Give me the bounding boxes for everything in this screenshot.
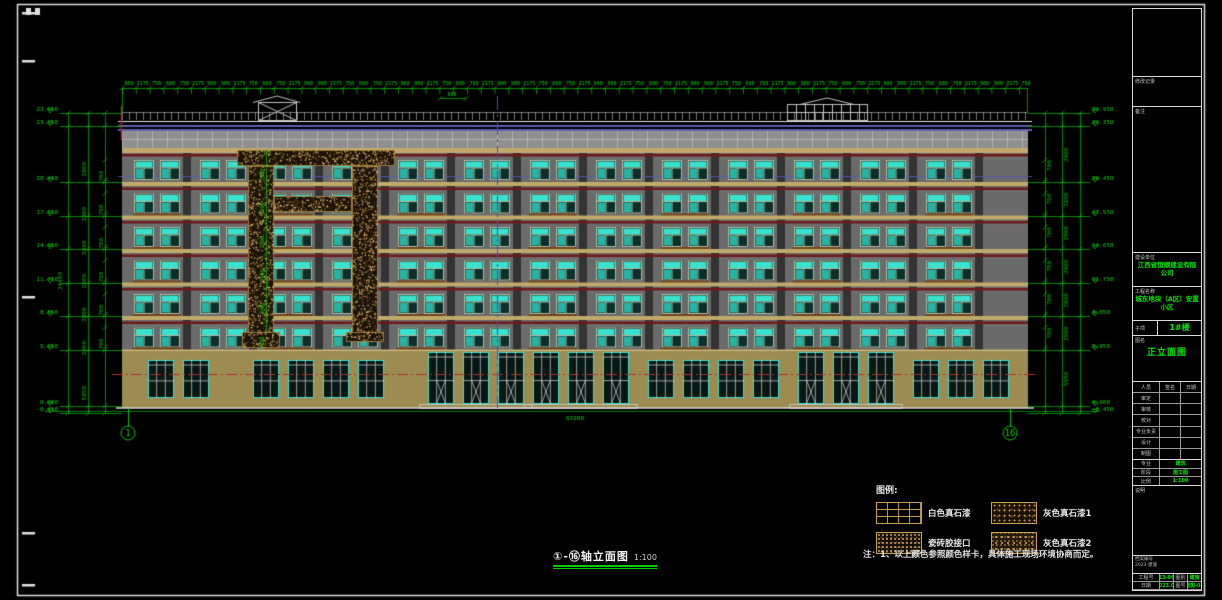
tb-stage-value: 施工图	[1160, 469, 1201, 477]
tb-subitem-box: 子项 1#楼	[1133, 321, 1201, 336]
tb-company-name: 江西省恒顺建设有限公司	[1133, 262, 1201, 277]
tb-bottom-row: 工程号23-06图别建施	[1133, 574, 1201, 582]
tb-bottom-label: 图号	[1174, 582, 1188, 589]
tb-sign-cell	[1160, 438, 1181, 448]
drawing-title-scale: 1:100	[634, 553, 657, 562]
tb-revision-label: 修改记录	[1135, 78, 1155, 85]
tb-header-cell: 日期	[1181, 382, 1201, 392]
legend-swatch-gray-stone-paint-1	[991, 502, 1037, 524]
tb-role-cell: 设计	[1133, 438, 1160, 448]
tb-date-cell	[1181, 415, 1201, 425]
tb-sheet-name-box: 图名 正立面图	[1133, 336, 1201, 382]
tb-stage-label: 阶段	[1133, 469, 1160, 477]
tb-company-label: 建设单位	[1135, 254, 1155, 261]
tb-bottom-value: 23-06	[1160, 574, 1174, 581]
tb-bottom-value: 建施	[1188, 574, 1201, 581]
tb-personnel-header: 人员签名日期	[1133, 382, 1201, 393]
tb-sign-cell	[1160, 449, 1181, 459]
legend-item: 白色真石漆	[876, 498, 991, 528]
tb-stage-label: 比例	[1133, 477, 1160, 485]
tb-stage-value: 1:100	[1160, 477, 1201, 485]
tb-sign-cell	[1160, 404, 1181, 414]
tb-role-cell: 审定	[1133, 393, 1160, 403]
tb-sign-cell	[1160, 415, 1181, 425]
tb-personnel-row: 校对	[1133, 415, 1201, 426]
tb-project-label: 工程名称	[1135, 288, 1155, 295]
tb-role-cell: 审核	[1133, 404, 1160, 414]
tb-date-cell	[1181, 393, 1201, 403]
tb-stage-table: 专业建筑阶段施工图比例1:100	[1133, 460, 1201, 486]
tb-stage-row: 比例1:100	[1133, 477, 1201, 485]
tb-sign-cell	[1160, 393, 1181, 403]
tb-stage-row: 阶段施工图	[1133, 469, 1201, 478]
tb-date-cell	[1181, 427, 1201, 437]
drawing-title-text: ①-⑯轴立面图	[553, 548, 629, 564]
tb-subitem-label: 子项	[1133, 321, 1158, 335]
tb-remark-label: 说明	[1135, 487, 1145, 494]
tb-personnel-row: 审核	[1133, 404, 1201, 415]
legend-swatch-white-stone-paint	[876, 502, 922, 524]
tb-sheet-name-value: 正立面图	[1133, 350, 1201, 358]
tb-personnel-table: 人员签名日期审定审核校对专业负责设计制图	[1133, 382, 1201, 460]
tb-project-name: 城东地块（A区）安置小区	[1133, 296, 1201, 311]
tb-role-cell: 制图	[1133, 449, 1160, 459]
tb-date-cell	[1181, 438, 1201, 448]
legend: 图例: 白色真石漆 灰色真石漆1 瓷砖胶接口 灰色真石漆2	[876, 483, 1101, 558]
tb-blank-box	[1133, 9, 1201, 77]
tb-subitem-value: 1#楼	[1158, 324, 1201, 332]
tb-sign-cell	[1160, 427, 1181, 437]
tb-bottom-label: 日期	[1133, 582, 1160, 589]
drawing-title-underline-thin	[553, 568, 657, 569]
drawing-sheet: 修改记录 备注 建设单位 江西省恒顺建设有限公司 工程名称 城东地块（A区）安置…	[0, 0, 1222, 600]
tb-bottom-table: 工程号23-06图别建施日期2023.06图号建施-08比例1:100页次08	[1133, 574, 1201, 590]
tb-header-cell: 签名	[1160, 382, 1181, 392]
drawing-title: ①-⑯轴立面图 1:100	[553, 548, 657, 569]
drawing-title-underline	[553, 565, 657, 567]
tb-personnel-row: 设计	[1133, 438, 1201, 449]
tb-bottom-label: 工程号	[1133, 574, 1160, 581]
tb-date-cell	[1181, 449, 1201, 459]
legend-item: 灰色真石漆1	[991, 498, 1101, 528]
tb-bottom-value: 2023.06	[1160, 582, 1174, 589]
tb-stage-value: 建筑	[1160, 460, 1201, 468]
tb-date-cell	[1181, 404, 1201, 414]
tb-personnel-row: 专业负责	[1133, 427, 1201, 438]
tb-bottom-value: 建施-08	[1188, 582, 1201, 589]
tb-company-box: 建设单位 江西省恒顺建设有限公司	[1133, 253, 1201, 287]
tb-bottom-row: 日期2023.06图号建施-08	[1133, 582, 1201, 590]
tb-bottom-label: 图别	[1174, 574, 1188, 581]
tb-file-line2: 2023-建施	[1135, 563, 1199, 569]
tb-stage-row: 专业建筑	[1133, 460, 1201, 469]
title-block: 修改记录 备注 建设单位 江西省恒顺建设有限公司 工程名称 城东地块（A区）安置…	[1132, 8, 1202, 591]
tb-note-box: 备注	[1133, 107, 1201, 253]
tb-header-cell: 人员	[1133, 382, 1160, 392]
tb-revision-box: 修改记录	[1133, 77, 1201, 107]
legend-note: 注：1、以上颜色参照颜色样卡，具体施工现场环境协商而定。	[863, 548, 1183, 560]
tb-personnel-row: 审定	[1133, 393, 1201, 404]
tb-stage-label: 专业	[1133, 460, 1160, 468]
legend-title: 图例:	[876, 483, 1101, 496]
tb-role-cell: 校对	[1133, 415, 1160, 425]
tb-project-box: 工程名称 城东地块（A区）安置小区	[1133, 287, 1201, 321]
tb-role-cell: 专业负责	[1133, 427, 1160, 437]
tb-sheet-name-label: 图名	[1135, 337, 1145, 344]
tb-remark-box: 说明	[1133, 486, 1201, 556]
tb-personnel-row: 制图	[1133, 449, 1201, 459]
tb-note-label: 备注	[1135, 108, 1145, 115]
